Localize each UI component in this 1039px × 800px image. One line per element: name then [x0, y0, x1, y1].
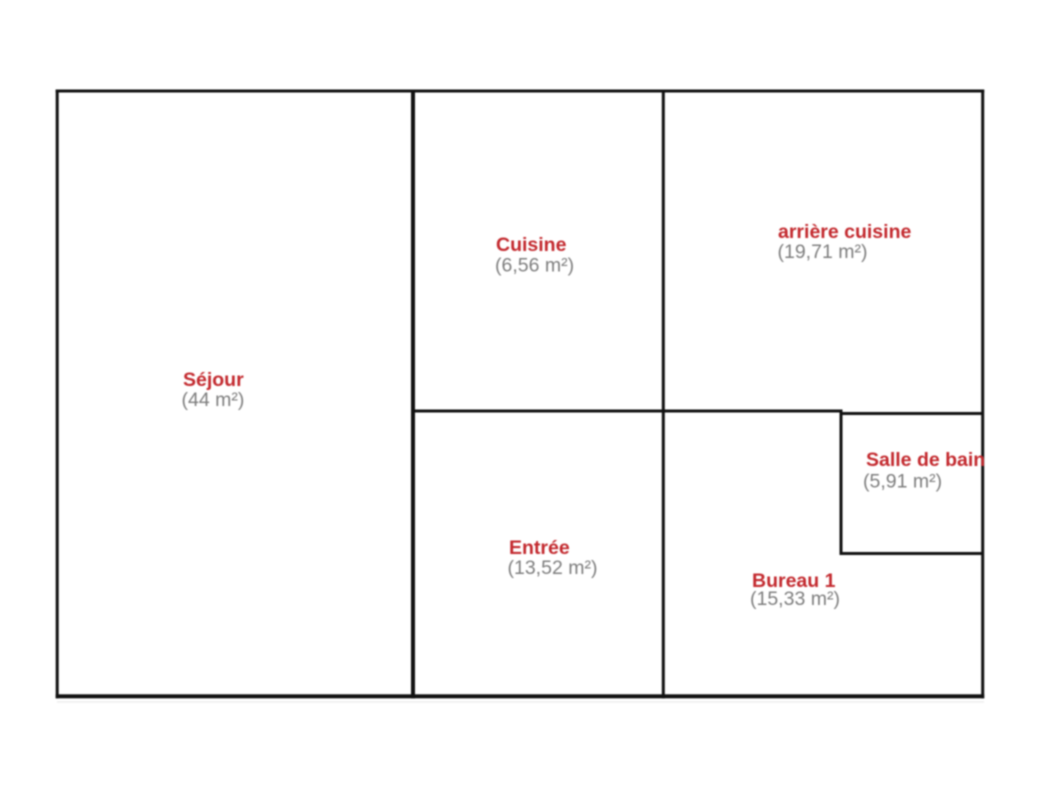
svg-text:(13,52 m²): (13,52 m²) — [508, 557, 598, 579]
svg-text:(44 m²): (44 m²) — [182, 389, 245, 411]
svg-text:Entrée: Entrée — [509, 537, 570, 559]
svg-text:(6,56 m²): (6,56 m²) — [495, 255, 574, 277]
svg-text:Salle de bain: Salle de bain — [866, 449, 985, 471]
svg-text:Séjour: Séjour — [183, 369, 244, 391]
svg-text:arrière cuisine: arrière cuisine — [778, 221, 911, 243]
svg-text:(15,33 m²): (15,33 m²) — [750, 588, 840, 610]
svg-text:(5,91 m²): (5,91 m²) — [863, 471, 942, 493]
svg-text:Cuisine: Cuisine — [496, 234, 567, 256]
svg-text:(19,71 m²): (19,71 m²) — [778, 241, 868, 263]
